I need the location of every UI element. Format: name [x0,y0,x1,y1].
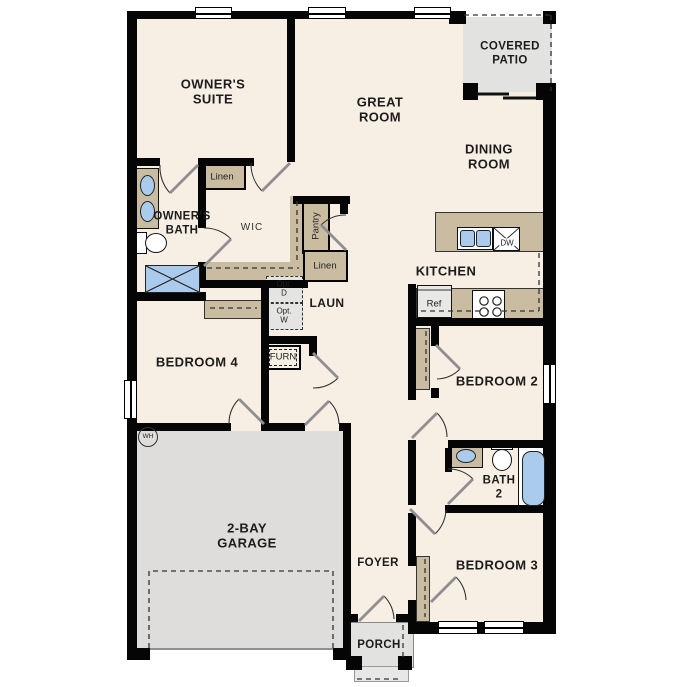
wic-rod-dashed [207,201,299,268]
covered-patio-label: COVERED PATIO [480,40,540,67]
door-arc [229,399,239,424]
bedroom4-label: BEDROOM 4 [156,354,238,369]
window [124,380,137,419]
doors-and-dashes-overlay [0,0,687,687]
window [414,7,451,19]
owners-bath-label: OWNER'S BATH [153,210,210,237]
door-leaf [448,479,473,504]
window [543,364,556,404]
door-arc [313,378,338,388]
opt-washer-label: Opt. W [276,307,291,326]
shower-x [146,266,199,292]
door-arc [160,165,170,193]
great-room-label: GREAT ROOM [357,95,404,126]
window [484,621,524,634]
door-arc [448,469,473,479]
owners-suite-label: OWNER'S SUITE [181,77,245,108]
door-arc [437,413,447,437]
window [438,621,478,634]
garage-door-dashed [149,571,333,648]
door-arc [251,163,262,191]
door-leaf [431,577,456,602]
door-leaf [436,345,460,369]
floor-plan: WH [0,0,687,687]
bath2-label: BATH 2 [483,474,516,501]
door-leaf [359,596,384,621]
door-leaf [262,163,290,191]
kitchen-label: KITCHEN [416,263,477,278]
window [308,7,346,19]
bedroom3-label: BEDROOM 3 [456,557,538,572]
stove-burners [480,297,501,316]
linen-wic-label: Linen [210,171,233,182]
door-arc [384,596,394,619]
foyer-label: FOYER [357,557,399,571]
porch-label: PORCH [357,639,401,653]
door-arc [329,401,339,424]
window [195,7,232,19]
garage-label: 2-BAY GARAGE [217,521,276,552]
door-arc [435,510,446,534]
dashed-lines [149,15,551,679]
pantry-label: Pantry [310,212,321,239]
door-leaf [239,399,264,424]
bedroom2-label: BEDROOM 2 [456,373,538,388]
dishwasher-label: DW [499,238,514,247]
door-leaf [412,413,437,438]
dining-room-label: DINING ROOM [465,142,513,173]
door-leaf [321,225,346,250]
door-arc [321,215,346,225]
linen-hall-label: Linen [313,260,336,271]
furnace-label: FURN [270,351,296,362]
door-arc [456,577,466,600]
wic-label: WIC [241,222,263,234]
door-leaf [204,239,231,266]
refrigerator-label: Ref [427,298,442,309]
door-leaf [170,165,198,193]
laundry-label: LAUN [310,296,345,310]
door-leaf [410,509,435,534]
door-leaf [305,401,329,425]
door-leaf [313,353,338,378]
opt-dryer-label: Opt. D [276,280,291,299]
